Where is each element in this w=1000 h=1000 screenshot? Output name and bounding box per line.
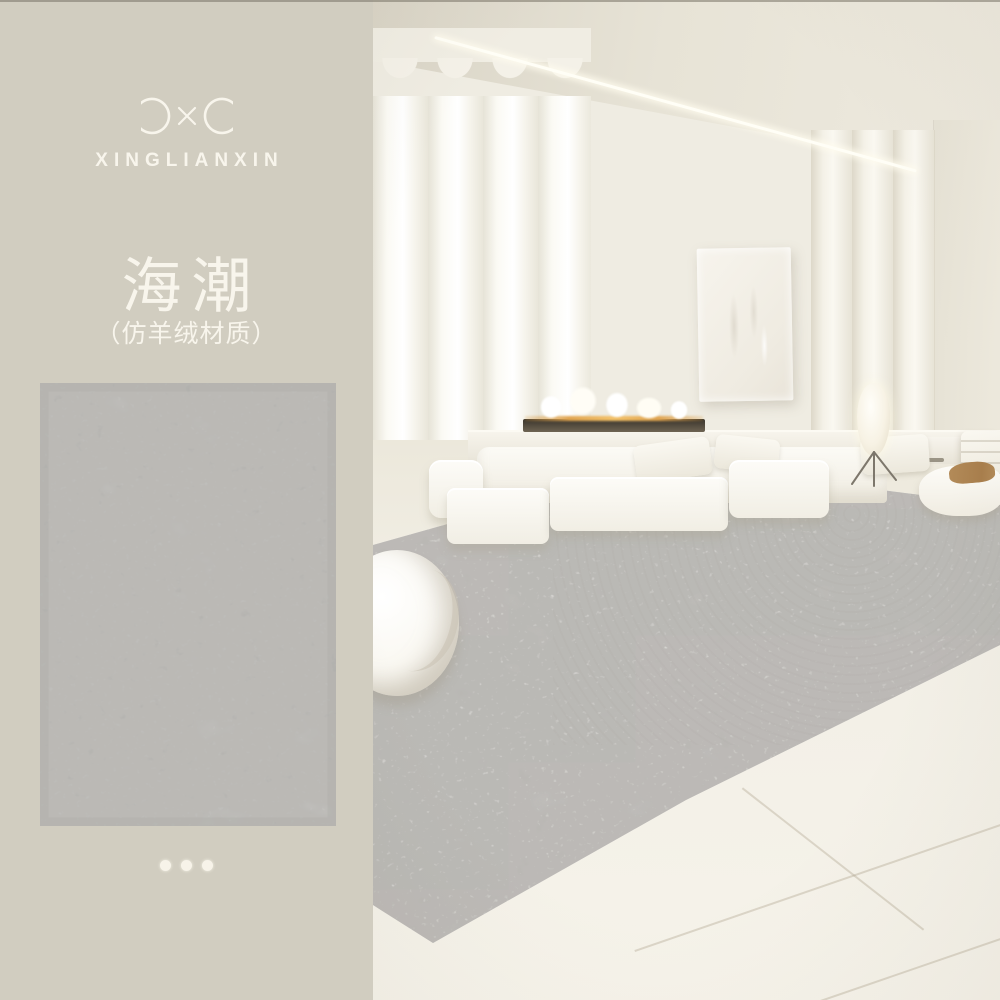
pagination-dot[interactable] (181, 860, 192, 871)
info-panel: XINGLIANXIN 海潮 （仿羊绒材质） (0, 0, 373, 1000)
floor-lamp-tripod (843, 450, 905, 493)
product-card: XINGLIANXIN 海潮 （仿羊绒材质） (0, 0, 1000, 1000)
living-room-photo (373, 0, 1000, 1000)
pagination-dot[interactable] (160, 860, 171, 871)
infinity-loops-icon (141, 92, 233, 140)
brand-logo (141, 92, 233, 145)
product-subtitle: （仿羊绒材质） (0, 314, 373, 350)
rug-swatch-texture (40, 383, 336, 826)
brand-name: XINGLIANXIN (0, 150, 373, 172)
sofa-ottoman (729, 460, 829, 518)
fireplace-flames (531, 381, 699, 421)
wall-relief-artwork (697, 247, 794, 402)
rug-swatch-image (40, 383, 336, 826)
pagination-dot[interactable] (202, 860, 213, 871)
wall-valance (373, 28, 591, 62)
sofa-seat-module (447, 488, 549, 544)
product-title: 海潮 (0, 238, 373, 325)
pagination-dots (0, 860, 373, 871)
sofa-seat-module (550, 477, 728, 531)
